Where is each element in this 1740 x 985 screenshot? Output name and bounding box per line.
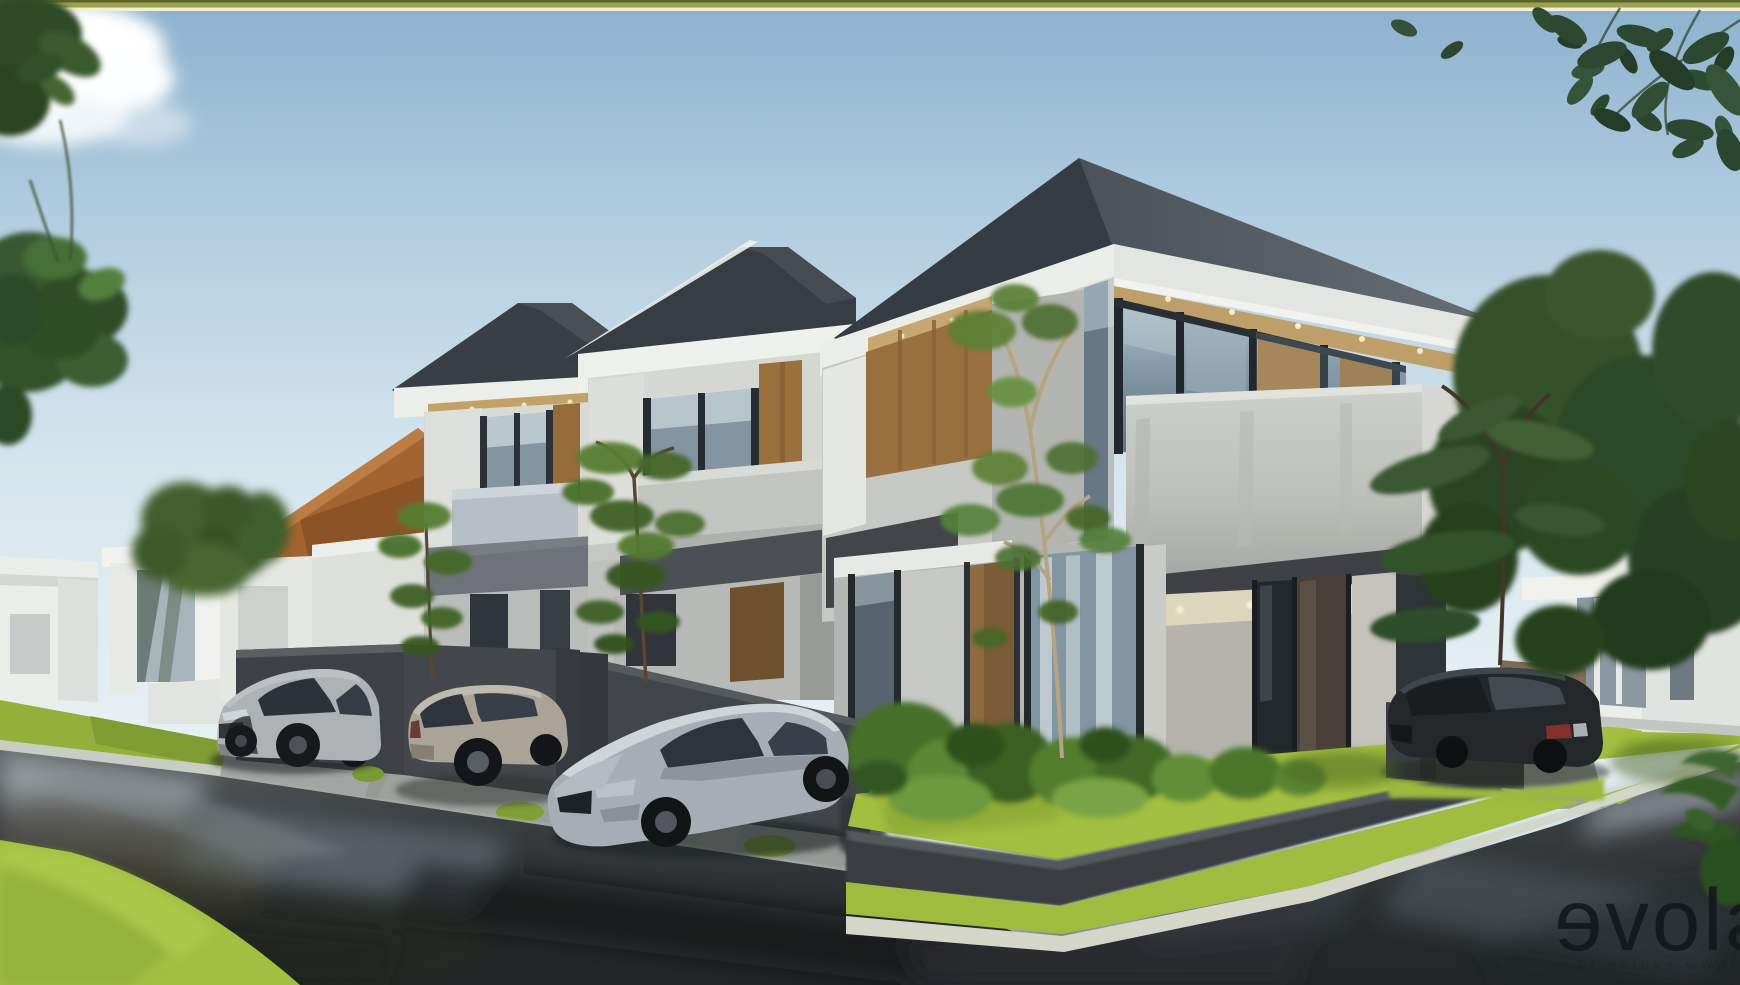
- svg-text:slove: slove: [1551, 872, 1740, 969]
- svg-text:www.evolve.id: www.evolve.id: [1573, 956, 1728, 972]
